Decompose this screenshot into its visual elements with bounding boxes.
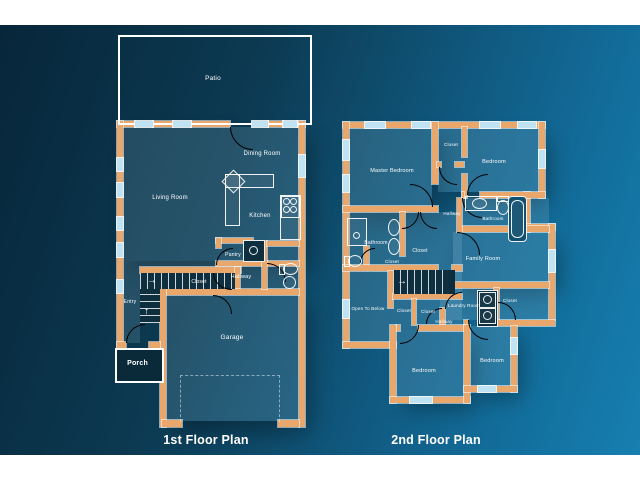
- wall: [117, 121, 123, 348]
- window: [480, 122, 500, 128]
- room-label-master-bedroom: Master Bedroom: [352, 165, 432, 177]
- room-label-family-room: Family Room: [453, 253, 513, 265]
- room-label-bedroom-top: Bedroom: [470, 156, 518, 168]
- stairs-up-arrow: ↑: [144, 307, 149, 317]
- room-label-closet: Closet: [183, 276, 215, 287]
- room-label-closet-walkin: Closet: [404, 246, 436, 256]
- sink-icon: [249, 246, 258, 255]
- window: [117, 217, 123, 230]
- room-label-closet-top: Closet: [437, 139, 465, 149]
- wall: [216, 238, 221, 248]
- window: [135, 121, 153, 127]
- wall: [278, 420, 299, 427]
- wall: [343, 342, 396, 348]
- second-floor-plan: → Master Bedroom: [340, 112, 560, 412]
- sink-icon: [388, 219, 400, 236]
- room-label-closet-small: Closet: [378, 257, 406, 266]
- sink-icon: [283, 276, 296, 289]
- window: [549, 250, 555, 272]
- window: [283, 121, 297, 127]
- first-floor-title: 1st Floor Plan: [106, 431, 306, 449]
- stairs-right-arrow: →: [397, 277, 407, 287]
- room-label-bedroom-right: Bedroom: [468, 355, 516, 367]
- wall: [162, 420, 182, 427]
- wall: [267, 241, 299, 246]
- second-floor-title: 2nd Floor Plan: [336, 431, 536, 449]
- dryer-drum-icon: [483, 311, 492, 320]
- wall: [432, 122, 438, 184]
- window: [252, 121, 268, 127]
- room-label-pantry: Pantry: [217, 249, 249, 260]
- room-label-open-to-below: Open To Below: [346, 303, 390, 313]
- garage-door-icon: [180, 375, 280, 422]
- toilet-icon: [283, 263, 298, 275]
- room-label-closet-b: Closet: [416, 307, 440, 316]
- room-label-hallway: Hallway: [219, 271, 263, 282]
- bathtub-icon: [511, 200, 524, 238]
- room-label-porch: Porch: [115, 348, 160, 379]
- window: [539, 150, 545, 168]
- room-label-closet-a: Closet: [392, 306, 416, 315]
- window: [117, 158, 123, 171]
- stove-burner-icon: [290, 206, 297, 213]
- window: [173, 121, 191, 127]
- stove-burner-icon: [283, 198, 290, 205]
- room-label-living-room: Living Room: [123, 191, 217, 205]
- window: [343, 140, 349, 160]
- window: [365, 122, 385, 128]
- wall: [390, 325, 396, 403]
- window: [117, 280, 123, 293]
- room-label-patio: Patio: [168, 72, 258, 84]
- room-label-entry: Entry: [116, 296, 144, 307]
- window: [518, 122, 536, 128]
- room-label-garage: Garage: [193, 330, 271, 344]
- room-label-closet-right: Closet: [496, 296, 524, 305]
- room-label-bedroom-left: Bedroom: [400, 365, 448, 377]
- room-label-dining-room: Dining Room: [208, 147, 316, 161]
- room-label-bathroom-left: Bathroom: [356, 238, 396, 248]
- window: [478, 386, 496, 392]
- wall: [462, 226, 549, 232]
- first-floor-plan: Patio: [113, 35, 323, 435]
- floor-plan-canvas: Patio: [0, 0, 640, 480]
- washer-drum-icon: [483, 295, 492, 304]
- wall: [494, 320, 555, 326]
- stove-burner-icon: [290, 198, 297, 205]
- window: [117, 243, 123, 257]
- window: [511, 338, 517, 354]
- stairs-right-arrow: →: [147, 276, 157, 286]
- room-label-hallway-upper: Hallway: [438, 208, 466, 218]
- wall: [549, 224, 555, 320]
- room-label-kitchen: Kitchen: [233, 209, 287, 223]
- sink-icon: [472, 198, 487, 209]
- window: [412, 122, 430, 128]
- room-label-bathroom-right: Bathroom: [475, 213, 511, 223]
- toilet-icon: [348, 255, 362, 267]
- window: [343, 175, 349, 192]
- room-label-laundry-room: Laundry Room: [446, 300, 482, 310]
- room-label-hallway-lower: Hallway: [430, 317, 458, 326]
- window: [410, 397, 432, 403]
